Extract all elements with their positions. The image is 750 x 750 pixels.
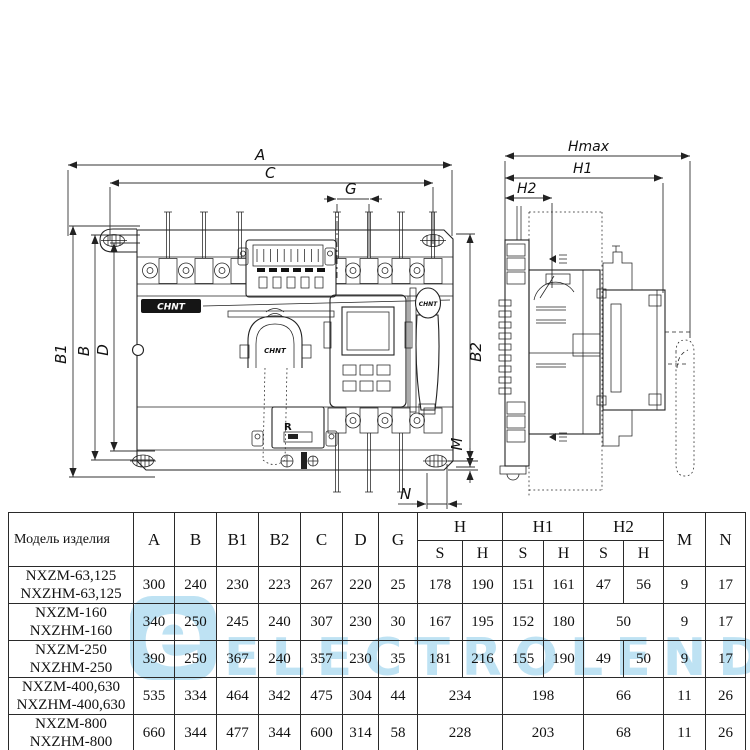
header-h1-h: H	[544, 541, 584, 567]
table-cell: 68	[584, 715, 664, 750]
header-b1: B1	[217, 513, 259, 567]
table-cell: 44	[379, 678, 418, 715]
table-cell: 300	[134, 567, 175, 604]
table-cell: 245	[217, 604, 259, 641]
model-line2: NXZHM-63,125	[20, 586, 121, 602]
header-h1-s: S	[503, 541, 544, 567]
table-cell: 250	[175, 604, 217, 641]
side-view: Hmax H1 H2	[499, 139, 694, 497]
table-cell: 180	[544, 604, 584, 641]
header-b2: B2	[259, 513, 301, 567]
bottom-terminals	[252, 408, 442, 446]
table-cell: 25	[379, 567, 418, 604]
table-cell: 17	[706, 604, 746, 641]
table-cell: 250	[175, 641, 217, 678]
header-g: G	[379, 513, 418, 567]
table-cell: 216	[463, 641, 503, 678]
side-controller-block	[603, 246, 665, 446]
dim-label-h1: H1	[573, 161, 592, 177]
table-cell: 220	[343, 567, 379, 604]
table-cell: 477	[217, 715, 259, 750]
table-cell: 240	[259, 604, 301, 641]
header-h2-s: S	[584, 541, 624, 567]
model-line1: NXZM-800	[35, 716, 107, 732]
model-line1: NXZM-63,125	[26, 568, 116, 584]
table-cell: 314	[343, 715, 379, 750]
side-terminal-strip	[499, 206, 529, 480]
handle-arch: CHNT	[240, 309, 311, 369]
table-cell: 56	[624, 567, 664, 604]
bottom-pins	[333, 433, 405, 492]
dimensional-drawing-page: e ELECTROLEND A C G	[0, 0, 750, 750]
table-cell: 340	[134, 604, 175, 641]
table-cell: 26	[706, 678, 746, 715]
model-line1: NXZM-250	[35, 642, 107, 658]
table-cell: 230	[217, 567, 259, 604]
controller-display	[342, 307, 394, 355]
table-cell: 240	[175, 567, 217, 604]
table-cell: 464	[217, 678, 259, 715]
table-cell: 190	[544, 641, 584, 678]
dim-label-hmax: Hmax	[568, 139, 610, 155]
table-cell: 307	[301, 604, 343, 641]
model-line1: NXZM-400,630	[22, 679, 120, 695]
table-cell: 475	[301, 678, 343, 715]
mounting-slot	[130, 455, 156, 467]
table-cell: 267	[301, 567, 343, 604]
table-cell: 344	[175, 715, 217, 750]
header-c: C	[301, 513, 343, 567]
model-line2: NXZHM-800	[30, 734, 113, 750]
table-cell: 50	[584, 604, 664, 641]
header-h-h: H	[463, 541, 503, 567]
dim-label-g: G	[345, 180, 357, 198]
relay-module: R	[272, 407, 324, 448]
table-cell: 240	[259, 641, 301, 678]
model-cell: NXZM-250 NXZHM-250	[9, 641, 134, 678]
header-h-s: S	[418, 541, 463, 567]
side-body	[529, 270, 606, 434]
brand-arch-label: CHNT	[264, 347, 287, 355]
header-h: H	[418, 513, 503, 541]
keyhole	[133, 345, 144, 356]
table-cell: 9	[664, 641, 706, 678]
table-cell: 152	[503, 604, 544, 641]
header-model: Модель изделия	[9, 513, 134, 567]
table-cell: 600	[301, 715, 343, 750]
model-line2: NXZHM-250	[30, 660, 113, 676]
table-cell: 35	[379, 641, 418, 678]
table-cell: 203	[503, 715, 584, 750]
table-cell: 178	[418, 567, 463, 604]
table-row: NXZM-63,125 NXZHM-63,125 300 240 230 223…	[9, 567, 746, 604]
brand-plate-label: CHNT	[157, 303, 186, 313]
table-cell: 660	[134, 715, 175, 750]
table-cell: 334	[175, 678, 217, 715]
header-m: M	[664, 513, 706, 567]
dim-label-a: A	[254, 146, 265, 164]
table-cell: 223	[259, 567, 301, 604]
table-cell: 190	[463, 567, 503, 604]
controller-module	[324, 295, 412, 407]
dim-label-b: B	[75, 346, 93, 356]
table-row: NXZM-160 NXZHM-160 340 250 245 240 307 2…	[9, 604, 746, 641]
table-cell: 11	[664, 678, 706, 715]
header-n: N	[706, 513, 746, 567]
dimensions-table: Модель изделия A B B1 B2 C D G H H1 H2 M…	[8, 512, 746, 750]
table-cell: 181	[418, 641, 463, 678]
table-cell: 344	[259, 715, 301, 750]
table-cell: 26	[706, 715, 746, 750]
dim-label-c: C	[265, 164, 276, 182]
table-cell: 9	[664, 604, 706, 641]
table-cell: 9	[664, 567, 706, 604]
table-cell: 234	[418, 678, 503, 715]
table-header-row: Модель изделия A B B1 B2 C D G H H1 H2 M…	[9, 513, 746, 541]
model-cell: NXZM-160 NXZHM-160	[9, 604, 134, 641]
table-row: NXZM-400,630 NXZHM-400,630 535 334 464 3…	[9, 678, 746, 715]
table-cell: 195	[463, 604, 503, 641]
table-cell: 47	[584, 567, 624, 604]
table-cell: 367	[217, 641, 259, 678]
table-cell: 230	[343, 641, 379, 678]
transfer-lever: CHNT	[408, 288, 441, 414]
dim-label-d: D	[94, 344, 112, 356]
table-row: NXZM-250 NXZHM-250 390 250 367 240 357 2…	[9, 641, 746, 678]
mounting-slot	[423, 455, 449, 467]
table-cell: 304	[343, 678, 379, 715]
model-line2: NXZHM-400,630	[17, 697, 126, 713]
table-cell: 357	[301, 641, 343, 678]
table-cell: 228	[418, 715, 503, 750]
header-h2-h: H	[624, 541, 664, 567]
control-terminal-strip	[238, 240, 336, 297]
dim-label-n: N	[400, 485, 411, 503]
table-cell: 390	[134, 641, 175, 678]
header-b: B	[175, 513, 217, 567]
table-cell: 50	[624, 641, 664, 678]
table-cell: 151	[503, 567, 544, 604]
dim-label-m: M	[448, 437, 466, 450]
header-h1: H1	[503, 513, 584, 541]
header-h2: H2	[584, 513, 664, 541]
model-cell: NXZM-63,125 NXZHM-63,125	[9, 567, 134, 604]
table-cell: 58	[379, 715, 418, 750]
model-cell: NXZM-800 NXZHM-800	[9, 715, 134, 750]
table-cell: 49	[584, 641, 624, 678]
table-cell: 167	[418, 604, 463, 641]
table-cell: 155	[503, 641, 544, 678]
dim-label-b2: B2	[467, 342, 485, 362]
bottom-screws	[281, 455, 318, 467]
controller-buttons[interactable]	[343, 365, 390, 391]
technical-drawing: A C G B1 B D	[0, 0, 750, 512]
header-d: D	[343, 513, 379, 567]
table-cell: 66	[584, 678, 664, 715]
header-a: A	[134, 513, 175, 567]
model-cell: NXZM-400,630 NXZHM-400,630	[9, 678, 134, 715]
table-cell: 17	[706, 641, 746, 678]
table-cell: 30	[379, 604, 418, 641]
table-cell: 230	[343, 604, 379, 641]
table-cell: 161	[544, 567, 584, 604]
brand-handle-label: CHNT	[419, 301, 438, 308]
table-cell: 342	[259, 678, 301, 715]
model-line2: NXZHM-160	[30, 623, 113, 639]
dim-label-b1: B1	[52, 344, 70, 364]
model-line1: NXZM-160	[35, 605, 107, 621]
table-cell: 17	[706, 567, 746, 604]
table-cell: 11	[664, 715, 706, 750]
table-row: NXZM-800 NXZHM-800 660 344 477 344 600 3…	[9, 715, 746, 750]
front-view: A C G B1 B D	[52, 146, 485, 509]
table-cell: 198	[503, 678, 584, 715]
relay-label: R	[284, 422, 292, 433]
table-cell: 535	[134, 678, 175, 715]
side-dashed-handle	[665, 332, 694, 476]
dim-label-h2: H2	[517, 181, 537, 197]
